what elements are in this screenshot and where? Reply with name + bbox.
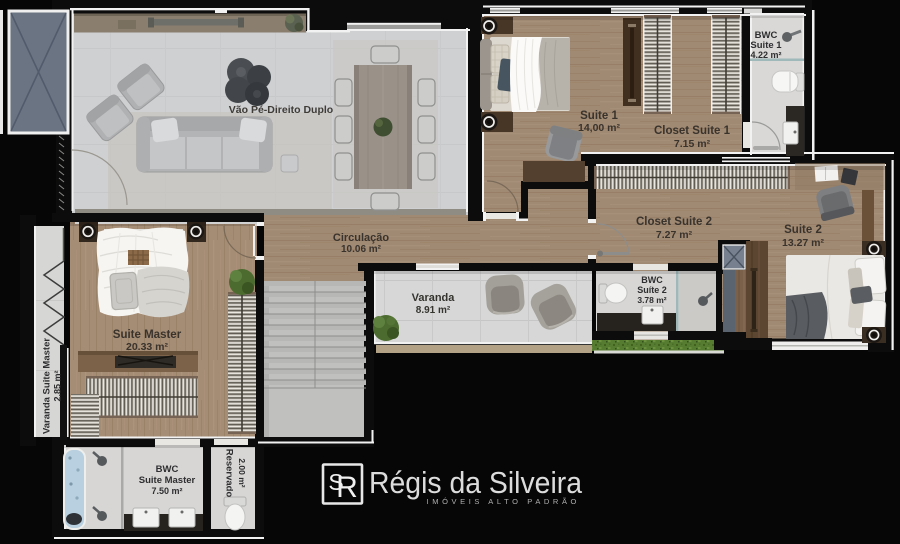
svg-text:BWC: BWC [641,275,663,285]
svg-text:13.27 m²: 13.27 m² [782,237,825,249]
svg-text:14,00 m²: 14,00 m² [578,122,621,134]
svg-text:2.85 m²: 2.85 m² [52,370,62,401]
svg-text:Vão Pé-Direito Duplo: Vão Pé-Direito Duplo [229,104,333,116]
svg-text:7.50 m²: 7.50 m² [151,486,182,496]
svg-text:Suite Master: Suite Master [113,329,182,341]
svg-text:Suíte 2: Suíte 2 [637,285,667,295]
svg-text:Suite 1: Suite 1 [580,110,618,122]
svg-text:2.00 m²: 2.00 m² [237,458,247,487]
svg-text:7.15 m²: 7.15 m² [674,138,711,150]
svg-text:4.22 m²: 4.22 m² [750,50,781,60]
svg-text:BWC: BWC [156,464,179,475]
svg-text:Reservado: Reservado [223,449,234,498]
svg-text:8.91 m²: 8.91 m² [416,305,451,316]
svg-text:Régis da Silveira: Régis da Silveira [369,465,583,500]
svg-text:Circulação: Circulação [333,232,390,244]
svg-text:Suite Master: Suite Master [139,475,196,486]
svg-text:Closet Suite 2: Closet Suite 2 [636,216,712,228]
svg-text:IMÓVEIS ALTO PADRÃO: IMÓVEIS ALTO PADRÃO [427,497,580,506]
svg-text:Varanda Suite Master: Varanda Suite Master [42,338,53,434]
svg-text:Varanda: Varanda [412,292,456,304]
svg-text:R: R [336,471,358,504]
svg-text:20.33 m²: 20.33 m² [126,341,169,353]
svg-text:7.27 m²: 7.27 m² [656,229,693,241]
svg-text:3.78 m²: 3.78 m² [637,295,666,305]
svg-text:10.06 m²: 10.06 m² [341,244,382,255]
svg-text:Closet Suite 1: Closet Suite 1 [654,125,731,137]
svg-text:Suite 2: Suite 2 [784,224,822,236]
